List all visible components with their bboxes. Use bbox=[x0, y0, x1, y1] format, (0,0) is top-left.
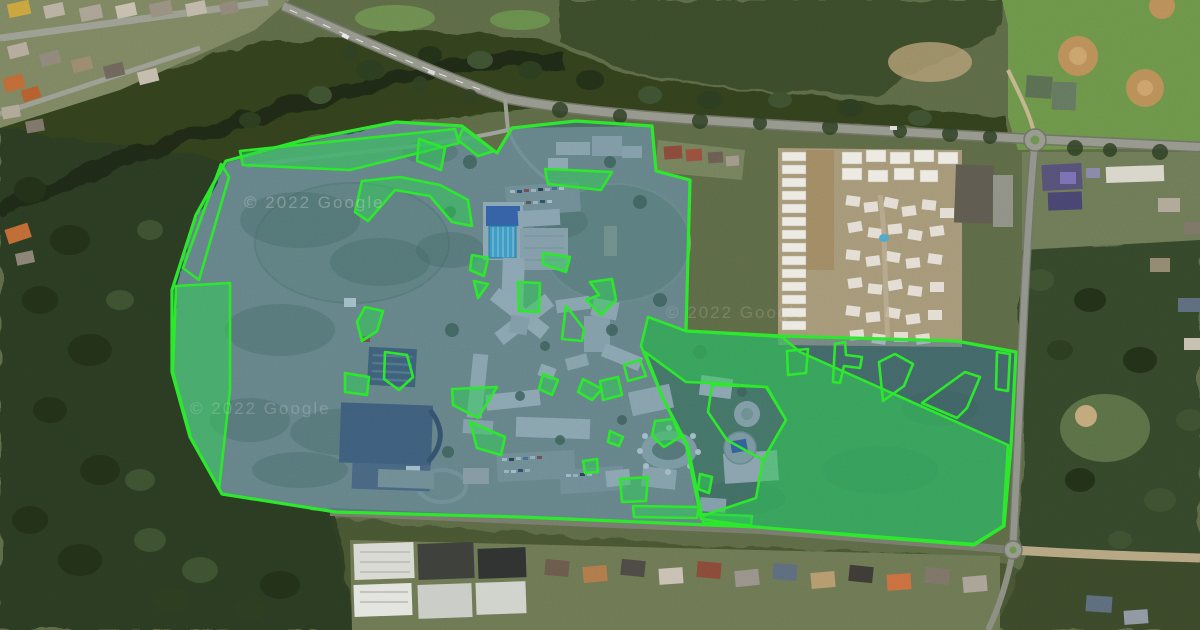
satellite-map[interactable]: © 2022 Google© 2022 Google© 2022 Google bbox=[0, 0, 1200, 630]
image-grain bbox=[0, 0, 1200, 630]
